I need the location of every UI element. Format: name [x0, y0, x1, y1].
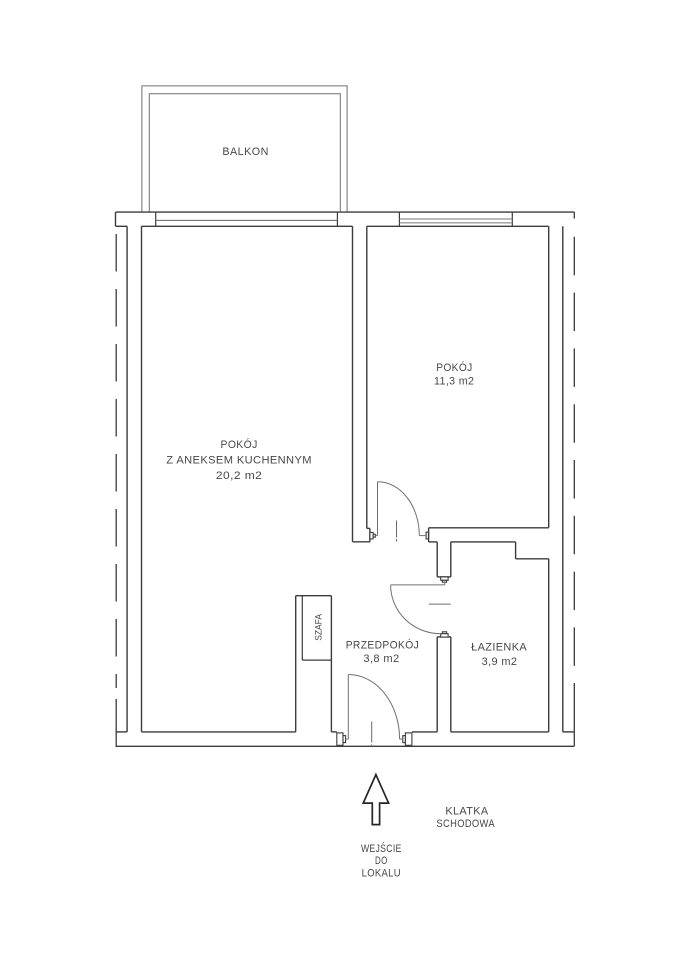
svg-text:SCHODOWA: SCHODOWA: [436, 818, 495, 830]
svg-text:3,8 m2: 3,8 m2: [363, 653, 399, 665]
svg-text:KLATKA: KLATKA: [445, 806, 488, 818]
svg-text:SZAFA: SZAFA: [312, 613, 323, 640]
svg-text:20,2 m2: 20,2 m2: [216, 470, 262, 482]
svg-text:POKÓJ: POKÓJ: [221, 438, 258, 451]
svg-text:BALKON: BALKON: [222, 146, 269, 158]
svg-text:WEJŚCIE: WEJŚCIE: [361, 842, 402, 855]
svg-text:POKÓJ: POKÓJ: [436, 361, 472, 374]
svg-text:LOKALU: LOKALU: [362, 867, 401, 879]
svg-text:PRZEDPOKÓJ: PRZEDPOKÓJ: [346, 639, 419, 652]
svg-text:ŁAZIENKA: ŁAZIENKA: [471, 642, 527, 654]
svg-text:Z ANEKSEM KUCHENNYM: Z ANEKSEM KUCHENNYM: [166, 454, 312, 466]
svg-text:11,3 m2: 11,3 m2: [434, 375, 474, 387]
svg-text:3,9 m2: 3,9 m2: [482, 656, 518, 668]
svg-text:DO: DO: [375, 855, 388, 867]
